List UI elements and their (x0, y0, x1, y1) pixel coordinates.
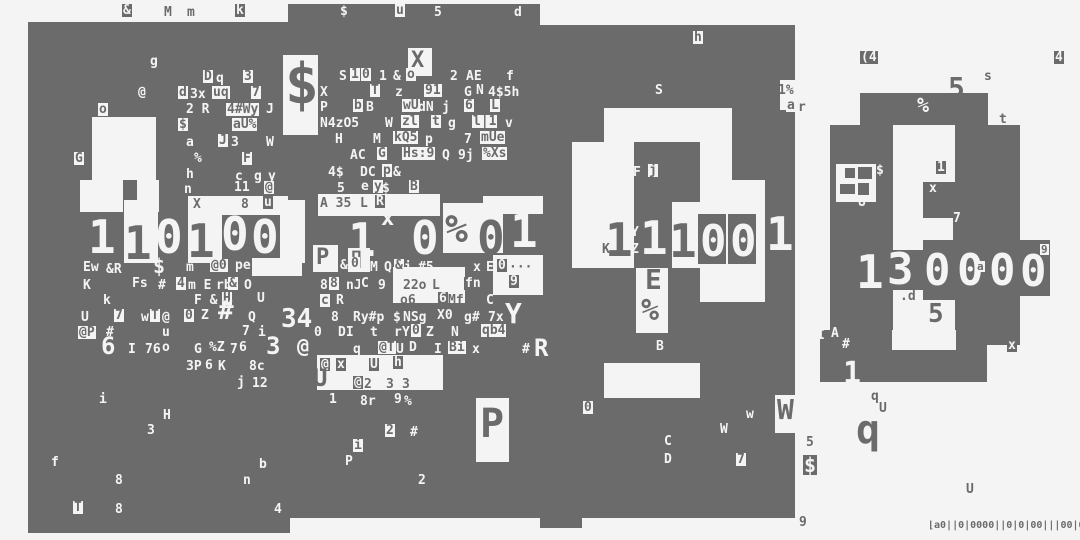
scatter-glyph: r (394, 326, 402, 339)
scatter-glyph: v (505, 117, 513, 130)
scatter-glyph: X (193, 198, 201, 211)
scatter-glyph: & (340, 259, 348, 272)
scatter-glyph: F (242, 152, 252, 165)
scatter-glyph: % (404, 395, 412, 408)
scatter-glyph: 0 (361, 68, 371, 81)
scatter-glyph: n (243, 474, 251, 487)
scatter-glyph: 4 (1054, 51, 1064, 64)
panel-block (540, 518, 582, 528)
big-digit-glyph: 0 (989, 249, 1016, 293)
scatter-glyph: 9 (393, 393, 403, 406)
big-digit-glyph: 1 (669, 218, 697, 264)
scatter-glyph: K (83, 279, 91, 292)
scatter-glyph: 3 (266, 334, 280, 358)
scatter-glyph: 8 (320, 279, 328, 292)
scatter-glyph: Z (631, 243, 639, 256)
scatter-glyph: 3 (243, 70, 253, 83)
gray-block (634, 142, 700, 202)
scatter-glyph: w (746, 408, 754, 421)
big-digit-glyph: 0 (700, 220, 727, 264)
scatter-glyph: 3 (147, 424, 155, 437)
scatter-glyph: 9j (458, 149, 474, 162)
white-patch (604, 108, 732, 142)
scatter-glyph: H (335, 133, 343, 146)
scatter-glyph: h (186, 168, 194, 181)
scatter-glyph: i (258, 326, 266, 339)
scatter-glyph: J (266, 103, 274, 116)
big-digit-glyph: 1 (856, 249, 884, 295)
scatter-glyph: G (194, 343, 202, 356)
scatter-glyph: 1 (350, 68, 360, 81)
scatter-glyph: 8 (115, 503, 123, 516)
scatter-glyph: O (244, 279, 252, 292)
scatter-glyph: 2 R (186, 103, 209, 116)
scatter-glyph: 1 (843, 359, 861, 389)
scatter-glyph: F & (194, 294, 217, 307)
scatter-glyph: 5 (337, 182, 345, 195)
scatter-glyph: 0 (583, 401, 593, 414)
scatter-glyph: DI (338, 326, 354, 339)
scatter-glyph: l|1 (472, 115, 497, 128)
scatter-glyph: c (320, 294, 330, 307)
scatter-glyph: A 35 (320, 197, 351, 210)
scatter-glyph: E (486, 261, 494, 274)
scatter-glyph: 6 (238, 341, 248, 354)
scatter-glyph: 9 (799, 516, 807, 529)
scatter-glyph: Ry#p (353, 311, 384, 324)
big-digit-glyph: 1 (640, 215, 668, 261)
scatter-glyph: 7 (736, 453, 746, 466)
scatter-glyph: a (786, 99, 796, 112)
scatter-glyph: $ (803, 455, 817, 475)
scatter-glyph: m E (188, 279, 211, 292)
scatter-glyph: 4#Wy (226, 103, 259, 116)
scatter-glyph: @ (353, 376, 363, 389)
scatter-glyph: 3 (402, 378, 410, 391)
scatter-glyph: x (472, 343, 480, 356)
scatter-glyph: mUe (480, 131, 505, 144)
scatter-glyph: Q (442, 149, 450, 162)
scatter-glyph: %Xs (482, 147, 507, 160)
scatter-glyph: 34 (281, 306, 312, 332)
scatter-glyph: t (999, 113, 1007, 126)
scatter-glyph: B (158, 294, 166, 307)
scatter-glyph: q (353, 343, 361, 356)
white-patch (892, 330, 956, 350)
scatter-glyph: 4 (274, 503, 282, 516)
gray-block (858, 183, 869, 195)
big-digit-glyph: 1 (124, 220, 152, 266)
scatter-glyph: dN (418, 101, 434, 114)
scatter-glyph: wU (402, 99, 420, 112)
scatter-glyph: I (434, 343, 442, 356)
scatter-glyph: U (256, 292, 266, 305)
scatter-glyph: & (393, 166, 401, 179)
scatter-glyph: 6 (204, 359, 214, 372)
scatter-glyph: X0 (436, 309, 454, 322)
scatter-glyph: B (366, 101, 374, 114)
scatter-glyph: a (186, 136, 194, 149)
scatter-glyph: x (336, 358, 346, 371)
scatter-glyph: 7 (230, 343, 238, 356)
scatter-glyph: A (831, 327, 839, 340)
scatter-glyph: 2 (364, 378, 372, 391)
gray-block (858, 167, 872, 179)
scatter-glyph: 9 (509, 275, 519, 288)
white-patch (92, 117, 156, 180)
big-digit-glyph: 0 (411, 215, 439, 261)
scatter-glyph: 7 (241, 325, 251, 338)
scatter-glyph: u (395, 4, 405, 17)
scatter-glyph: J (218, 134, 228, 147)
scatter-glyph: @ (296, 336, 310, 356)
scatter-glyph: fn (464, 277, 482, 290)
scatter-glyph: I (817, 329, 825, 342)
scatter-glyph: U (966, 483, 974, 496)
scatter-glyph: 22o (403, 279, 426, 292)
scatter-glyph: C (486, 294, 494, 307)
scatter-glyph: % (194, 152, 202, 165)
scatter-glyph: U (81, 311, 89, 324)
scatter-glyph: S (655, 84, 663, 97)
scatter-glyph: z (395, 86, 403, 99)
scatter-glyph: 6 (438, 292, 448, 305)
scatter-glyph: X (320, 86, 328, 99)
binary-barcode-text: ⌊a0||0|0000||0|0|00|||00|00||0000 (928, 520, 1080, 531)
scatter-glyph: 5 (928, 301, 944, 327)
scatter-glyph: 3 (231, 136, 239, 149)
scatter-glyph: 1 (379, 70, 387, 83)
scatter-glyph: u (263, 196, 273, 209)
scatter-glyph: # (522, 343, 530, 356)
scatter-glyph: H (163, 409, 171, 422)
scatter-glyph: s (984, 70, 992, 83)
scatter-glyph: W (266, 136, 274, 149)
scatter-glyph: Z (200, 309, 210, 322)
white-patch (280, 200, 305, 263)
scatter-glyph: 5 (806, 436, 814, 449)
scatter-glyph: R (534, 336, 548, 360)
scatter-glyph: $ (393, 311, 401, 324)
scatter-glyph: uq (212, 86, 230, 99)
scatter-glyph: Hs:9 (402, 147, 435, 160)
scatter-glyph: R (336, 294, 344, 307)
scatter-glyph: # (841, 338, 851, 351)
scatter-glyph: o (98, 103, 108, 116)
scatter-glyph: f (506, 70, 514, 83)
scatter-glyph: 3x (190, 88, 206, 101)
scatter-glyph: qb4 (481, 324, 506, 337)
scatter-glyph: K (218, 360, 226, 373)
scatter-glyph: i (353, 439, 363, 452)
scatter-glyph: T (150, 309, 160, 322)
scatter-glyph: k (235, 4, 245, 17)
scatter-glyph: i (404, 261, 412, 274)
scatter-glyph: $ (340, 5, 348, 18)
scatter-glyph: b (259, 458, 267, 471)
scatter-glyph: W (385, 117, 393, 130)
scatter-glyph: C (664, 435, 672, 448)
scatter-glyph: ··· (509, 261, 532, 274)
scatter-glyph: 8 (331, 311, 339, 324)
scatter-glyph: D (664, 453, 672, 466)
big-digit-glyph: 0 (251, 214, 279, 260)
scatter-glyph: Y (505, 300, 522, 328)
scatter-glyph: 8 (329, 277, 339, 290)
scatter-glyph: 2 (418, 474, 426, 487)
scatter-glyph: q (216, 72, 224, 85)
scatter-glyph: D (408, 341, 418, 354)
scatter-glyph: Z (426, 326, 434, 339)
scatter-glyph: d (178, 86, 188, 99)
scatter-glyph: 0 (411, 324, 421, 337)
scatter-glyph: T (370, 84, 380, 97)
gray-block (845, 168, 855, 178)
white-patch (923, 218, 953, 240)
scatter-glyph: 9 (1040, 244, 1049, 255)
scatter-glyph: t (431, 115, 441, 128)
scatter-glyph: 11 (234, 181, 250, 194)
scatter-glyph: kQ5 (393, 131, 418, 144)
scatter-glyph: %Z (208, 341, 226, 354)
scatter-glyph: U (313, 366, 327, 390)
scatter-glyph: T (73, 501, 83, 514)
scatter-glyph: 2 (385, 424, 395, 437)
scatter-glyph: F (633, 166, 641, 179)
scatter-glyph: i (99, 393, 107, 406)
scatter-glyph: Y (631, 226, 639, 239)
big-digit-glyph: 1 (766, 211, 794, 257)
scatter-glyph: 0 (602, 148, 610, 161)
scatter-glyph: @ (264, 181, 274, 194)
scatter-glyph: 1 (328, 393, 338, 406)
scatter-glyph: 6 (464, 99, 474, 112)
scatter-glyph: zl (401, 115, 419, 128)
big-digit-glyph: 3 (887, 248, 914, 292)
scatter-glyph: a (976, 261, 985, 272)
scatter-glyph: @0 (210, 259, 228, 272)
big-digit-glyph: x (381, 208, 394, 230)
scatter-glyph: P (320, 101, 328, 114)
scatter-glyph: DC (360, 166, 376, 179)
scatter-glyph: D (203, 70, 213, 83)
scatter-glyph: $ (178, 118, 188, 131)
scatter-glyph: U (369, 358, 379, 371)
scatter-glyph: b (353, 99, 363, 112)
scatter-glyph: q (856, 410, 880, 450)
scatter-glyph: &R (106, 263, 122, 276)
scatter-glyph: Fs (131, 277, 149, 290)
scatter-glyph: I (128, 343, 136, 356)
scatter-glyph: n (184, 183, 192, 196)
big-digit-glyph: 0 (221, 211, 249, 257)
scatter-glyph: 0 (497, 259, 507, 272)
scatter-glyph: # (218, 298, 234, 324)
scatter-glyph: 1% (778, 84, 794, 97)
scatter-glyph: 91 (424, 84, 442, 97)
white-patch (893, 125, 923, 250)
scatter-glyph: aU% (232, 118, 257, 131)
scatter-glyph: 4$ (328, 166, 344, 179)
scatter-glyph: h (693, 31, 703, 44)
scatter-glyph: 0 (314, 326, 322, 339)
scatter-glyph: Y (226, 393, 234, 406)
big-digit-glyph: 1 (88, 214, 116, 260)
scatter-glyph: % (917, 95, 929, 115)
scatter-glyph: p (425, 133, 433, 146)
scatter-glyph: e (360, 180, 370, 193)
scatter-glyph: Q (384, 261, 392, 274)
scatter-glyph: E (645, 266, 662, 294)
scatter-glyph: 2 (450, 70, 458, 83)
scatter-glyph: B (656, 340, 664, 353)
scatter-glyph: S (118, 294, 126, 307)
scatter-glyph: 7 (251, 86, 261, 99)
scatter-glyph: 5 (434, 6, 442, 19)
big-digit-glyph: 0 (477, 215, 505, 261)
scatter-glyph: @ (162, 311, 170, 324)
scatter-glyph: Q (248, 311, 256, 324)
scatter-glyph: B (409, 180, 419, 193)
scatter-glyph: x (929, 182, 937, 195)
scatter-glyph: Bi (448, 341, 466, 354)
scatter-glyph: 76 (145, 343, 161, 356)
scatter-glyph: j (442, 101, 450, 114)
scatter-glyph: P (480, 404, 504, 444)
scatter-glyph: 7 (114, 309, 124, 322)
scatter-glyph: 9 (378, 279, 386, 292)
scatter-glyph: L (490, 99, 500, 112)
scatter-glyph: 6 (101, 334, 115, 358)
scatter-glyph: m (186, 261, 194, 274)
scatter-glyph: @T (378, 341, 396, 354)
scatter-glyph: M (370, 261, 378, 274)
scatter-glyph: t (226, 377, 234, 390)
scatter-glyph: c (1018, 246, 1025, 257)
scatter-glyph: g (254, 170, 262, 183)
scatter-glyph: 8 (241, 198, 249, 211)
scatter-glyph: 3P (186, 360, 202, 373)
scatter-glyph: # (410, 426, 418, 439)
scatter-glyph: & (394, 259, 404, 272)
scatter-glyph: M (373, 133, 381, 146)
scatter-glyph: AC (350, 149, 366, 162)
scatter-glyph: W (777, 396, 794, 424)
scatter-glyph: N4zO5 (320, 117, 359, 130)
scatter-glyph: N (475, 84, 485, 97)
scatter-glyph: x (473, 261, 481, 274)
scatter-glyph: h (393, 356, 403, 369)
glitch-art-canvas: 1101001x0%01111001130000&Mmk$u5dgDq3@d3x… (0, 0, 1080, 540)
scatter-glyph: 0 (184, 309, 194, 322)
scatter-glyph: q (871, 390, 879, 403)
scatter-glyph: 0 (350, 257, 360, 270)
scatter-glyph: j (648, 164, 658, 177)
scatter-glyph: 7 (464, 133, 472, 146)
scatter-glyph: #5 (418, 261, 434, 274)
scatter-glyph: 7 (953, 212, 961, 225)
scatter-glyph: $ (285, 57, 319, 113)
scatter-glyph: 8r (360, 395, 376, 408)
scatter-glyph: L (360, 197, 368, 210)
scatter-glyph: g (448, 117, 456, 130)
scatter-glyph: @P (78, 326, 96, 339)
scatter-glyph: 8 (115, 474, 123, 487)
scatter-glyph: o6 (400, 294, 416, 307)
scatter-glyph: $ (153, 256, 165, 276)
scatter-glyph: & (393, 70, 401, 83)
scatter-glyph: k (103, 294, 111, 307)
big-digit-glyph: 0 (924, 249, 951, 293)
big-digit-glyph: 0 (730, 220, 757, 264)
white-patch (80, 180, 123, 212)
scatter-glyph: & (228, 277, 238, 290)
scatter-glyph: d (514, 6, 522, 19)
scatter-glyph: o (161, 341, 171, 354)
scatter-glyph: p (382, 164, 392, 177)
scatter-glyph: a (233, 361, 241, 374)
scatter-glyph: M (164, 6, 172, 19)
scatter-glyph: C (360, 277, 370, 290)
scatter-glyph: w (141, 311, 149, 324)
scatter-glyph: @ (138, 86, 146, 99)
white-patch (604, 363, 700, 398)
scatter-glyph: 12 (252, 377, 268, 390)
scatter-glyph: R (375, 195, 385, 208)
gray-block (840, 184, 855, 194)
scatter-glyph: U (879, 402, 887, 415)
scatter-glyph: Ew (83, 261, 99, 274)
scatter-glyph: N (451, 326, 459, 339)
scatter-glyph: # (158, 279, 166, 292)
scatter-glyph: x (1007, 339, 1017, 352)
scatter-glyph: pe (234, 259, 252, 272)
scatter-glyph: m (187, 6, 195, 19)
scatter-glyph: t (370, 326, 378, 339)
scatter-glyph: o (406, 68, 416, 81)
scatter-glyph: 6 (816, 178, 824, 191)
scatter-glyph: G (377, 147, 387, 160)
scatter-glyph: G (74, 152, 84, 165)
scatter-glyph: Y (402, 326, 410, 339)
scatter-glyph: g (150, 55, 158, 68)
scatter-glyph: f (51, 456, 59, 469)
big-digit-glyph: 1 (510, 208, 538, 254)
scatter-glyph: u (161, 326, 171, 339)
scatter-glyph: (4 (860, 51, 878, 64)
scatter-glyph: .d (899, 290, 917, 303)
scatter-glyph: 9" (186, 393, 202, 406)
scatter-glyph: & (122, 4, 132, 17)
big-digit-glyph: % (445, 210, 468, 248)
scatter-glyph: 5 (948, 74, 965, 102)
scatter-glyph: W (720, 423, 728, 436)
scatter-glyph: 4 (176, 277, 186, 290)
scatter-glyph: P (345, 455, 353, 468)
scatter-glyph: g# (464, 311, 480, 324)
scatter-glyph: 3 (386, 378, 394, 391)
scatter-glyph: AE (466, 70, 482, 83)
scatter-glyph: $ (876, 164, 884, 177)
scatter-glyph: 8c (249, 360, 265, 373)
scatter-glyph: U (858, 196, 866, 209)
scatter-glyph: % (641, 296, 659, 326)
scatter-glyph: P (316, 247, 329, 269)
scatter-glyph: K (602, 243, 610, 256)
scatter-glyph: Mf (448, 294, 464, 307)
scatter-glyph: 1 (936, 161, 946, 174)
scatter-glyph: r (798, 101, 806, 114)
